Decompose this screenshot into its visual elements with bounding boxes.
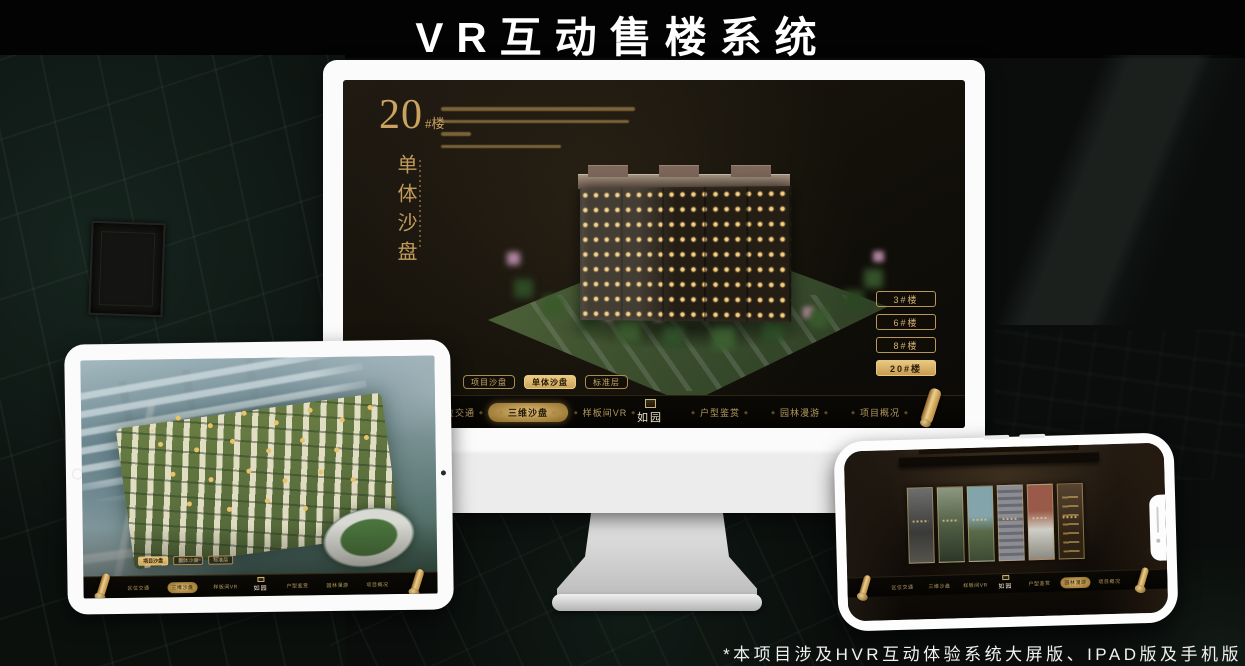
subtab-single-sandtable[interactable]: 单体沙盘	[524, 375, 576, 389]
page-title: VR互动售楼系统	[0, 4, 1245, 65]
nav-item-floorplans[interactable]: 户型鉴赏	[687, 406, 753, 419]
floor-button-20[interactable]: 20#楼	[876, 360, 936, 376]
seal-icon	[257, 577, 264, 582]
aerial-vignette	[80, 356, 437, 599]
model-roof-dormer	[731, 166, 771, 177]
description-line	[441, 107, 635, 111]
footnote-text: *本项目涉及HVR互动体验系统大屏版、IPAD版及手机版	[723, 640, 1242, 665]
scroll-icon[interactable]	[96, 573, 111, 598]
tablet-subtabs: 项目沙盘 单体沙盘 标准层	[138, 555, 233, 565]
floor-button-3[interactable]: 3#楼	[876, 291, 936, 307]
block-number: 20	[379, 92, 423, 138]
subtab-project-sandtable[interactable]: 项目沙盘	[138, 556, 168, 565]
scene-panel[interactable]	[1027, 484, 1055, 561]
nav-item-floorplans[interactable]: 户型鉴赏	[1028, 580, 1050, 588]
nav-item-sandtable-3d[interactable]: 三维沙盘	[488, 403, 568, 422]
scroll-icon[interactable]	[410, 568, 425, 593]
scene-panel[interactable]	[937, 486, 965, 563]
floor-button-group: 3#楼 6#楼 8#楼 20#楼	[876, 291, 936, 376]
description-line	[441, 145, 561, 149]
subtab-standard-floor[interactable]: 标准层	[585, 375, 628, 389]
volume-button	[983, 435, 1009, 440]
nav-item-project-overview[interactable]: 项目概况	[1098, 578, 1120, 586]
scene-panel[interactable]	[967, 485, 995, 562]
speaker-icon	[1156, 507, 1159, 533]
nav-item-sandtable-3d[interactable]: 三维沙盘	[928, 583, 950, 591]
nav-item-showroom-vr[interactable]: 样板间VR	[570, 406, 640, 419]
scroll-icon[interactable]	[858, 574, 871, 597]
tablet-navbar: 区位交通 三维沙盘 样板间VR 如园 户型鉴赏 园林漫游 项目概况	[83, 572, 437, 599]
sandtable-subtabs: 项目沙盘 单体沙盘 标准层	[463, 375, 628, 389]
tablet-device: 项目沙盘 单体沙盘 标准层 区位交通 三维沙盘 样板间VR 如园 户型鉴赏 园林…	[64, 339, 454, 614]
nav-item-garden-roam[interactable]: 园林漫游	[326, 582, 348, 589]
background-road-band	[985, 55, 1245, 325]
nav-item-garden-roam[interactable]: 园林漫游	[1060, 577, 1090, 589]
brand-logo-name: 如园	[998, 581, 1012, 590]
nav-item-floorplans[interactable]: 户型鉴赏	[286, 582, 308, 589]
floor-button-8[interactable]: 8#楼	[876, 337, 936, 353]
model-roof-dormer	[659, 166, 699, 177]
description-line	[441, 120, 629, 124]
nav-item-project-overview[interactable]: 项目概况	[847, 406, 913, 419]
brand-logo[interactable]: 如园	[998, 575, 1012, 590]
scene-panel[interactable]	[997, 485, 1025, 562]
phone-notch	[1149, 495, 1167, 561]
volume-button	[1019, 434, 1045, 439]
brand-logo[interactable]: 如园	[637, 399, 663, 425]
seal-icon	[645, 399, 656, 408]
block-description	[441, 107, 635, 157]
background-framed-sign	[88, 221, 165, 318]
subtab-project-sandtable[interactable]: 项目沙盘	[463, 375, 515, 389]
nav-item-project-overview[interactable]: 项目概况	[366, 581, 388, 588]
description-line	[441, 132, 471, 136]
subtab-standard-floor[interactable]: 标准层	[208, 555, 233, 564]
nav-item-location[interactable]: 区位交通	[127, 585, 149, 592]
scene-panel[interactable]	[1057, 483, 1085, 560]
model-facade-windows	[580, 186, 791, 322]
nav-item-showroom-vr[interactable]: 样板间VR	[963, 582, 988, 590]
block-heading: 20#楼	[379, 94, 445, 136]
seal-icon	[1002, 575, 1009, 580]
camera-icon	[441, 470, 446, 475]
floor-button-6[interactable]: 6#楼	[876, 314, 936, 330]
monitor-stand-base	[552, 594, 762, 611]
phone-device: 区位交通 三维沙盘 样板间VR 如园 户型鉴赏 园林漫游 项目概况	[833, 432, 1178, 631]
brand-logo[interactable]: 如园	[253, 577, 267, 592]
subtab-single-sandtable[interactable]: 单体沙盘	[173, 556, 203, 565]
phone-screen: 区位交通 三维沙盘 样板间VR 如园 户型鉴赏 园林漫游 项目概况	[844, 443, 1169, 622]
scroll-icon[interactable]	[920, 387, 943, 425]
nav-item-location[interactable]: 区位交通	[891, 584, 913, 592]
scroll-icon[interactable]	[1136, 567, 1149, 590]
camera-icon	[1156, 539, 1160, 543]
model-roof-dormer	[588, 166, 628, 177]
block-category-vertical: 单体沙盘	[391, 154, 420, 270]
brand-logo-name: 如园	[253, 583, 267, 592]
brand-logo-name: 如园	[637, 409, 663, 425]
block-category-subtitle	[419, 160, 421, 250]
nav-item-showroom-vr[interactable]: 样板间VR	[213, 583, 238, 590]
scene-panel-gallery	[907, 483, 1085, 564]
scene-panel[interactable]	[907, 487, 935, 564]
nav-item-sandtable-3d[interactable]: 三维沙盘	[167, 582, 197, 593]
interior-beam	[899, 452, 1099, 467]
nav-item-garden-roam[interactable]: 园林漫游	[767, 406, 833, 419]
poster-canvas: VR互动售楼系统 20#楼 单体沙盘	[0, 0, 1245, 666]
tablet-screen: 项目沙盘 单体沙盘 标准层 区位交通 三维沙盘 样板间VR 如园 户型鉴赏 园林…	[80, 356, 437, 599]
